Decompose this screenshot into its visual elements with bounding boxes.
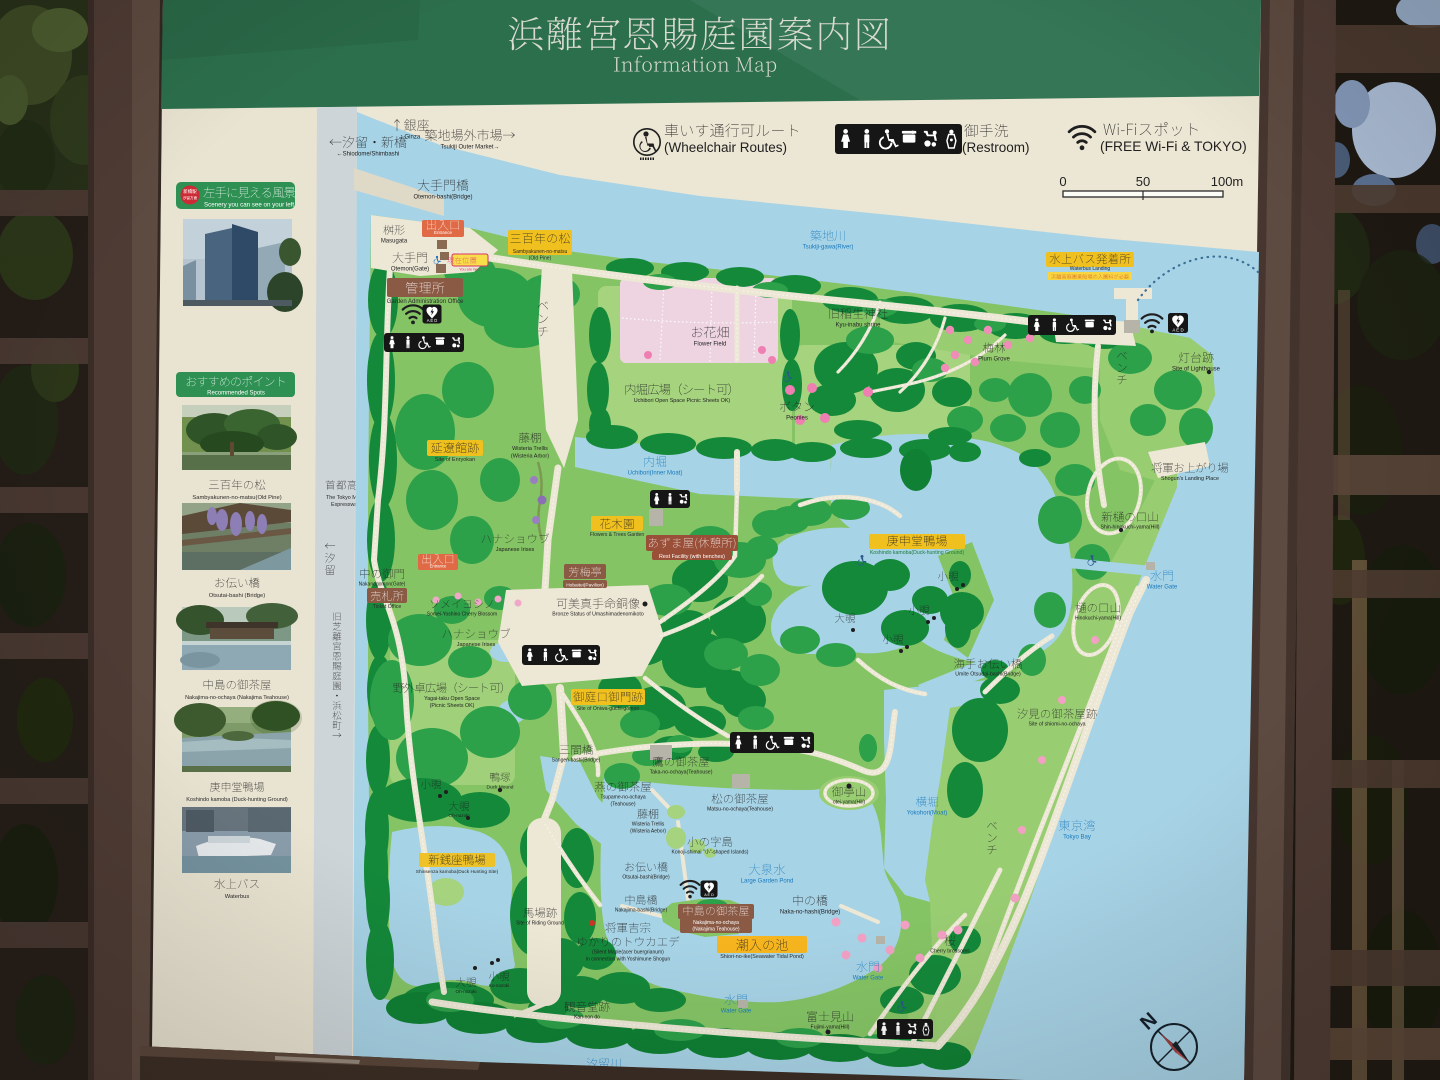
svg-text:Plum Grove: Plum Grove bbox=[978, 357, 1010, 363]
svg-text:(Picnic Sheets OK): (Picnic Sheets OK) bbox=[430, 703, 475, 709]
svg-text:(FREE Wi-Fi & TOKYO): (FREE Wi-Fi & TOKYO) bbox=[1100, 139, 1247, 154]
svg-text:Tokyo Bay: Tokyo Bay bbox=[1063, 835, 1091, 841]
svg-text:Nakajima-no-ochaya: Nakajima-no-ochaya bbox=[693, 920, 739, 926]
svg-text:Yokohori(Moat): Yokohori(Moat) bbox=[907, 811, 947, 817]
svg-text:Tsukiji-gawa(River): Tsukiji-gawa(River) bbox=[803, 245, 854, 251]
svg-text:Entrance: Entrance bbox=[430, 564, 447, 569]
svg-text:Site of Lighthouse: Site of Lighthouse bbox=[1172, 367, 1221, 373]
svg-text:Site of Riding Ground: Site of Riding Ground bbox=[516, 921, 564, 927]
svg-text:Tsupame-no-ochaya: Tsupame-no-ochaya bbox=[600, 795, 646, 801]
svg-text:Water Gate: Water Gate bbox=[853, 976, 884, 982]
svg-text:Uchibori Open Space Picnic Sh: Uchibori Open Space Picnic Sheets OK) bbox=[634, 398, 731, 404]
svg-text:Peonies: Peonies bbox=[786, 416, 808, 422]
svg-text:Flowers & Trees Garden: Flowers & Trees Garden bbox=[590, 532, 644, 538]
svg-text:in connection with Yoshimune S: in connection with Yoshimune Shogun bbox=[586, 957, 670, 963]
svg-text:(Old Pine): (Old Pine) bbox=[529, 256, 552, 262]
svg-text:Site of Oniwa-guchi-gomon: Site of Oniwa-guchi-gomon bbox=[577, 706, 640, 712]
svg-text:(Silent Maple(acer buergrianum: (Silent Maple(acer buergrianum) bbox=[592, 950, 664, 956]
svg-text:Shiori-no-ike(Seawater Tidal P: Shiori-no-ike(Seawater Tidal Pond) bbox=[720, 954, 804, 960]
svg-text:Water Gate: Water Gate bbox=[721, 1009, 752, 1015]
svg-text:Otemon-bashi(Bridge): Otemon-bashi(Bridge) bbox=[413, 195, 472, 201]
svg-text:(Teahouse): (Teahouse) bbox=[610, 802, 635, 808]
svg-text:Waterbus: Waterbus bbox=[225, 894, 250, 900]
svg-text:Flower Field: Flower Field bbox=[694, 342, 727, 348]
svg-text:Kan-non do: Kan-non do bbox=[574, 1015, 600, 1021]
svg-text:Yagai-taku Open Space: Yagai-taku Open Space bbox=[424, 696, 480, 702]
svg-text:Site of shiomi-no-ochaya: Site of shiomi-no-ochaya bbox=[1028, 722, 1085, 728]
svg-text:(Wisteria Aebor): (Wisteria Aebor) bbox=[630, 829, 666, 835]
svg-text:100m: 100m bbox=[1211, 174, 1244, 189]
svg-text:Large Garden Pond: Large Garden Pond bbox=[741, 879, 794, 885]
svg-text:Fujimi-yama(Hill): Fujimi-yama(Hill) bbox=[811, 1025, 850, 1031]
svg-text:Sambyakunen-no-matsu: Sambyakunen-no-matsu bbox=[513, 249, 568, 255]
svg-text:Wisteria Trellis: Wisteria Trellis bbox=[512, 446, 548, 452]
svg-text:Shinsenza kamoba(Duck Hunting: Shinsenza kamoba(Duck Hunting Site) bbox=[416, 869, 499, 875]
svg-text:Site of Enryokan: Site of Enryokan bbox=[435, 457, 475, 463]
svg-text:Masugata: Masugata bbox=[381, 239, 408, 245]
svg-text:Entrance: Entrance bbox=[434, 230, 453, 235]
svg-text:Matsu-no-ochaya(Teahouse): Matsu-no-ochaya(Teahouse) bbox=[707, 807, 773, 813]
svg-text:Otsutai-bashi(Bridge): Otsutai-bashi(Bridge) bbox=[622, 875, 670, 881]
svg-text:Rest Facility (with benches): Rest Facility (with benches) bbox=[659, 554, 725, 560]
svg-text:Taka-no-ochaya(Teahouse): Taka-no-ochaya(Teahouse) bbox=[650, 770, 713, 776]
svg-text:Uchibori(Inner Moat): Uchibori(Inner Moat) bbox=[628, 471, 683, 477]
svg-text:You are here: You are here bbox=[459, 268, 481, 272]
svg-text:Hinokuchi-yama(Hill): Hinokuchi-yama(Hill) bbox=[1075, 616, 1121, 622]
svg-text:Hobaitei(Pavilion): Hobaitei(Pavilion) bbox=[566, 583, 604, 589]
svg-text:50: 50 bbox=[1136, 174, 1150, 189]
svg-text:Water Gate: Water Gate bbox=[1147, 585, 1178, 591]
svg-text:otei-yama(Hill): otei-yama(Hill) bbox=[833, 800, 866, 806]
svg-text:Bronze Status of Umashimadenom: Bronze Status of Umashimadenomikoto bbox=[552, 612, 644, 618]
svg-text:Tsukiji Outer Market→: Tsukiji Outer Market→ bbox=[440, 145, 499, 151]
svg-text:Shogun's Landing Place: Shogun's Landing Place bbox=[1161, 476, 1219, 482]
svg-text:Scenery you can see on your le: Scenery you can see on your left bbox=[204, 202, 294, 209]
svg-text:(Nakajima Teahouse): (Nakajima Teahouse) bbox=[692, 927, 739, 933]
svg-text:0: 0 bbox=[1059, 174, 1066, 189]
svg-text:↑ Ginza: ↑ Ginza bbox=[400, 135, 421, 141]
svg-text:Recommended Spots: Recommended Spots bbox=[207, 391, 265, 397]
svg-text:←Shiodome/Shimbashi: ←Shiodome/Shimbashi bbox=[337, 152, 400, 158]
svg-text:Naka-no-hashi(Bridge): Naka-no-hashi(Bridge) bbox=[780, 910, 840, 916]
svg-text:汐留方面: 汐留方面 bbox=[183, 195, 198, 200]
svg-text:Sambyakunen-no-matsu(Old Pine): Sambyakunen-no-matsu(Old Pine) bbox=[192, 495, 281, 501]
svg-text:Somei-Yoshino Cherry Blossom: Somei-Yoshino Cherry Blossom bbox=[427, 612, 497, 618]
svg-text:新橋駅: 新橋駅 bbox=[183, 188, 197, 195]
svg-text:Shin-hinokuchi-yama(Hill): Shin-hinokuchi-yama(Hill) bbox=[1100, 525, 1159, 531]
svg-text:Otemon(Gate): Otemon(Gate) bbox=[391, 267, 429, 273]
svg-text:Cherry brossoms: Cherry brossoms bbox=[930, 949, 970, 955]
svg-text:Umite Otsudai-bashi(Bridge): Umite Otsudai-bashi(Bridge) bbox=[955, 672, 1021, 678]
svg-text:Nakanogomon(Gate): Nakanogomon(Gate) bbox=[359, 582, 406, 588]
svg-text:Garden Administration Office: Garden Administration Office bbox=[387, 299, 464, 305]
svg-text:Sangen-bashi(Bridge): Sangen-bashi(Bridge) bbox=[552, 758, 601, 764]
svg-text:(Wisteria Arbor): (Wisteria Arbor) bbox=[511, 454, 549, 460]
svg-text:Otsutai-bashi (Bridge): Otsutai-bashi (Bridge) bbox=[209, 593, 265, 599]
svg-text:Japanese Irises: Japanese Irises bbox=[496, 547, 535, 553]
svg-text:Nakajima-bashi(Bridge): Nakajima-bashi(Bridge) bbox=[615, 908, 668, 914]
svg-text:A E D: A E D bbox=[1172, 327, 1183, 332]
svg-text:Oh-nozoki: Oh-nozoki bbox=[456, 989, 477, 994]
svg-text:Koshindo kamoba(Duck-hunting G: Koshindo kamoba(Duck-hunting Ground) bbox=[870, 550, 965, 556]
svg-text:Ticket Office: Ticket Office bbox=[373, 604, 402, 610]
svg-text:Konoji-shimai "小"-shaped Islan: Konoji-shimai "小"-shaped Islands) bbox=[672, 849, 749, 856]
svg-text:Ko-nozoki: Ko-nozoki bbox=[489, 983, 509, 988]
svg-text:Koshindo kamoba (Duck-hunting: Koshindo kamoba (Duck-hunting Ground) bbox=[186, 797, 288, 803]
svg-text:Japanese Irises: Japanese Irises bbox=[457, 642, 496, 648]
svg-text:A E D: A E D bbox=[427, 318, 438, 323]
svg-text:Waterbus Landing: Waterbus Landing bbox=[1070, 266, 1111, 272]
svg-text:Kyu-inabu shrine: Kyu-inabu shrine bbox=[835, 323, 881, 329]
svg-text:(Wheelchair Routes): (Wheelchair Routes) bbox=[664, 140, 787, 155]
svg-text:Wisteria Trellis: Wisteria Trellis bbox=[632, 822, 665, 828]
svg-text:(Restroom): (Restroom) bbox=[962, 140, 1030, 155]
svg-text:A E D: A E D bbox=[704, 893, 714, 897]
